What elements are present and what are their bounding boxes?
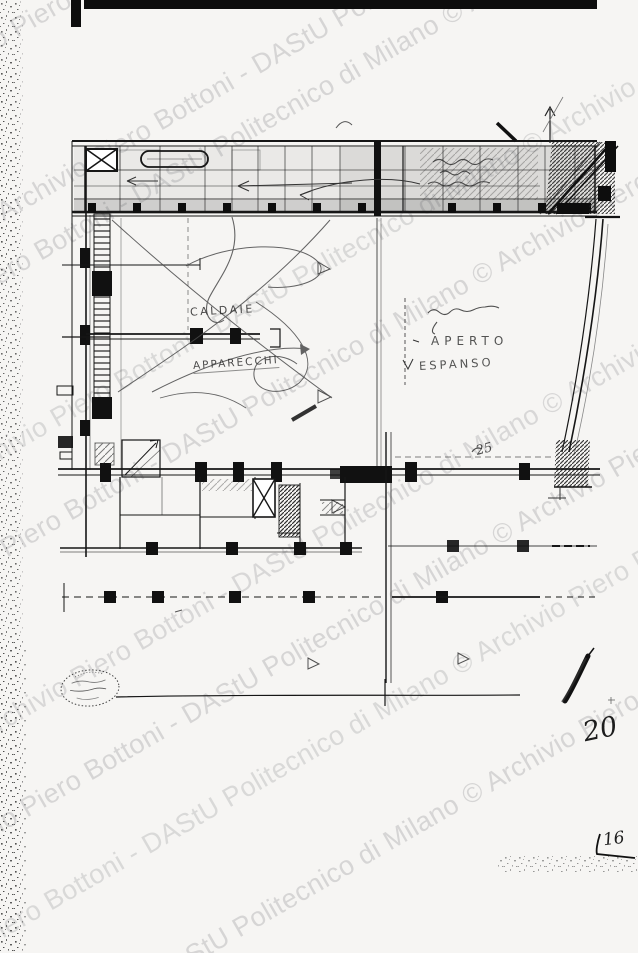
archive-stamp <box>60 668 120 708</box>
bottom-lines <box>62 583 615 706</box>
pencil-sketch-lines <box>112 217 469 669</box>
triangle-markers <box>308 262 469 669</box>
scan-edge-artifacts <box>0 0 638 953</box>
right-slanted-wall <box>548 217 620 500</box>
top-section-band <box>72 141 597 216</box>
floor-plan-scan <box>0 0 638 953</box>
note-aperto: APERTO <box>431 334 508 348</box>
folio-number: 16 <box>602 828 626 850</box>
main-horizontal-wall <box>58 462 600 483</box>
scanned-drawing-page: © Archivio Piero Bottoni - DAStU Politec… <box>0 0 638 953</box>
